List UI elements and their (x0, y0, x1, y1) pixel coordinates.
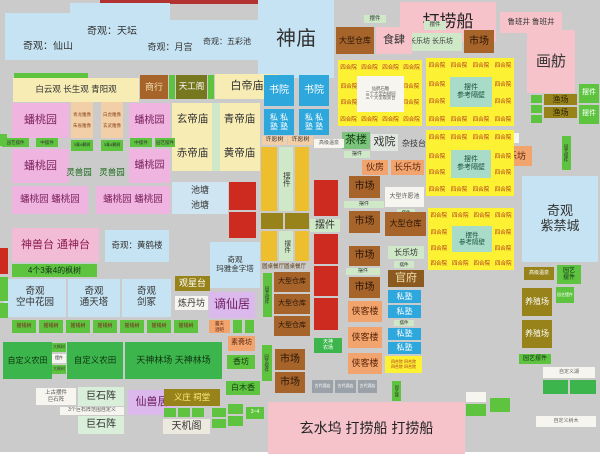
courtyard-cell-label: 四合院 (427, 185, 447, 193)
maple-note: 3乘4枫树 (71, 140, 93, 151)
huafang-boat: 画舫 (527, 30, 575, 93)
green-bit (543, 380, 568, 394)
red-decor-block (229, 212, 256, 238)
daxing-cangku: 大型仓库 (336, 27, 374, 54)
maple-strip: 4个3乘4的枫树 (12, 264, 97, 277)
courtyard-cell-label: 四合院 (449, 115, 469, 123)
sishu-school: 私 私 塾 塾 (264, 109, 294, 135)
courtyard-cell-label: 四合院 (427, 61, 447, 69)
zhong-baijian-label: 中摆件 (36, 138, 58, 147)
hotspring-label: 高级温泉 (314, 139, 344, 148)
green-strip (208, 75, 214, 99)
baijian-strip: 摆件 (344, 151, 370, 158)
wonder-forbidden-city: 奇观 紫禁城 (522, 176, 598, 262)
red-decor-block (229, 182, 256, 210)
courtyard-cell-label: 四合院 (427, 168, 447, 176)
xiakelou: 侠客楼 (348, 327, 382, 348)
green-bit (490, 398, 510, 412)
green-strip (169, 75, 175, 99)
yangzhichang: 养殖场 (522, 320, 552, 348)
money-tree: 摇钱树 (93, 320, 117, 333)
taoist-temples-row: 白云观 长生观 青阳观 (13, 78, 139, 102)
changlefang: 长乐坊 (391, 160, 424, 175)
red-decor-block (314, 180, 338, 216)
changlefang-strip: 长乐坊 (388, 246, 424, 259)
red-decor-block (314, 234, 338, 264)
courtyard-cell-label: 四合院 (451, 259, 471, 267)
courtyard-cell-label: 四合院 (493, 80, 513, 88)
shichang-market: 市场 (464, 30, 494, 53)
stonehenge: 巨石阵 (78, 387, 124, 406)
shichang-market: 市场 (275, 372, 305, 393)
sishu-school: 私 私 塾 塾 (299, 109, 329, 135)
green-bit (164, 408, 176, 417)
shuyuan-academy: 书院 (264, 75, 294, 106)
courtyard-cell-label: 四合院 (381, 63, 400, 71)
courtyard-cell-label: 四合院 (494, 259, 514, 267)
courtyard-cell-label: 四合院 (493, 168, 513, 176)
gold-strip (261, 147, 277, 211)
hotel-block: 古代酒店 (358, 380, 377, 393)
yy-vstrip: 园艺摆件 (263, 273, 272, 317)
chitang-pond: 池塘 池塘 (172, 182, 228, 214)
shichang-market: 市场 (349, 176, 380, 198)
tree-count-note: 3~4 (246, 407, 264, 419)
wonder-band (70, 3, 170, 17)
pantaoyuan-orchard: 蟠桃园 (129, 149, 170, 183)
wonder-huanghelou: 奇观：黄鹤楼 (105, 230, 169, 262)
grid-center-note: 摆件 参考隔壁 (450, 77, 492, 107)
courtyard-cell-label: 四合院 (471, 115, 491, 123)
money-tree: 摇钱树 (39, 320, 63, 333)
baijian-vstrip: 摆件 (279, 231, 293, 261)
suzhaifang: 素斋坊 (228, 336, 255, 351)
gold-strip (295, 147, 309, 211)
money-tree: 摇钱树 (147, 320, 171, 333)
green-strip (245, 320, 254, 333)
yuchang-fishery: 渔场 (544, 94, 577, 105)
courtyard-cell-label: 四合院 (471, 61, 491, 69)
courtyard-cell-label: 四合院 (494, 211, 514, 219)
yizhuang-citang: 义庄 祠堂 (164, 389, 220, 406)
ancient-note: 上古摆件 巨石阵 (36, 388, 76, 405)
lingshouyuan-label: 灵兽园 (97, 167, 127, 179)
green-bit (531, 115, 542, 123)
wonder-wucaichi-label: 奇观：五彩池 (196, 36, 258, 47)
baijian-block: 摆件 (579, 84, 599, 103)
sishu-school: 私塾 (388, 328, 421, 340)
courtyard-cell-label: 四合院 (429, 228, 449, 236)
yy-vstrip: 园艺摆 (392, 381, 401, 401)
zhong-baijian-label: 中摆件 (130, 138, 152, 147)
courtyard-cell-label: 四合院 (493, 244, 513, 252)
courtyard-cell-label: 四合院 (429, 211, 449, 219)
hotspring-block: 高级温泉 (524, 267, 554, 280)
wonder-xianshan-label: 奇观：仙山 (8, 41, 88, 53)
maple-note: 3乘4枫树 (101, 140, 123, 151)
wonder-maya: 奇观 玛雅金字塔 (210, 242, 260, 288)
money-tree: 摇钱树 (12, 320, 36, 333)
baijian-strip: 摆件 (344, 201, 384, 208)
courtyard-cell-label: 四合院 (493, 185, 513, 193)
courtyard-cell-label: 四合院 (449, 61, 469, 69)
gold-strip (295, 231, 309, 261)
yy-label: 园艺摆件 (519, 354, 551, 364)
game-layout-map: 奇观：天坛奇观：仙山奇观：月宫奇观：五彩池神庙打捞船鲁班井 鲁班井画舫摆件长乐坊… (0, 0, 600, 461)
daxing-cangku: 大型仓库 (274, 294, 310, 314)
stonehenge-note: 3个巨石阵范围自定义 (60, 407, 124, 415)
tianshen-farm: 天神 农场 (314, 338, 342, 353)
mini-courtyard-grid: 四合院 四合院 四合院 四合院 (385, 356, 422, 373)
yy-label: 园艺摆件 (556, 287, 574, 303)
baijian-block: 摆件 (579, 105, 599, 124)
courtyard-cell-label: 四合院 (427, 80, 447, 88)
yy-vstrip: 园艺摆件 (562, 136, 571, 170)
wonder-jianzhong: 奇观 剑冢 (122, 279, 171, 317)
shisi-eatery: 食肆 (376, 27, 412, 54)
tiangongge: 天工阁 (176, 75, 207, 99)
olive-decor-block (285, 213, 309, 229)
wonder-hanging-garden: 奇观 空中花园 (4, 279, 66, 317)
yy-block: 园艺 摆件 (557, 265, 581, 284)
courtyard-cell-label: 四合院 (493, 152, 513, 160)
courtyard-cell-label: 四合院 (360, 115, 379, 123)
green-bit (212, 408, 226, 417)
custom-farm: 自定义农田 (3, 342, 52, 379)
courtyard-cell-label: 四合院 (449, 133, 469, 141)
courtyard-cell-label: 四合院 (401, 98, 421, 106)
green-bit (466, 404, 486, 416)
white-bit (466, 392, 486, 402)
tianjige: 天机阁 (163, 419, 210, 434)
chalou-teahouse: 茶楼 (342, 132, 370, 149)
courtyard-cell-label: 四合院 (493, 61, 513, 69)
zajitai-label: 杂技台 (399, 138, 429, 150)
courtyard-cell-label: 四合院 (493, 97, 513, 105)
shenmiao-temple: 神庙 (258, 0, 334, 78)
green-strip (212, 103, 220, 171)
xiakelou: 侠客楼 (348, 301, 382, 322)
green-bit (531, 105, 542, 113)
gold-strip (261, 231, 277, 261)
yangzhichang: 养殖场 (522, 288, 552, 316)
wish-pool: 大型许愿池 (385, 187, 424, 207)
courtyard-cell-label: 四合院 (472, 211, 492, 219)
red-decor-block (314, 266, 338, 296)
sishu-school: 私塾 (388, 342, 421, 354)
baijian-strip: 摆件 (346, 268, 380, 275)
stonehenge: 巨石阵 (78, 416, 124, 434)
baijian-label: 摆件 (394, 320, 414, 326)
courtyard-cell-label: 四合院 (401, 82, 421, 90)
courtyard-cell-label: 四合院 (493, 228, 513, 236)
baijian-vstrip: 摆件 (279, 147, 293, 211)
round-table-label: 圆桌餐厅圆桌餐厅 (258, 263, 310, 271)
xiyuan-theater: 戏院 (371, 134, 398, 151)
baijian-label: 摆件 (364, 15, 386, 23)
money-tree: 摇钱树 (66, 320, 90, 333)
courtyard-cell-label: 四合院 (471, 185, 491, 193)
courtyard-cell-label: 四合院 (429, 259, 449, 267)
shichang-market: 市场 (349, 211, 380, 233)
grid-center-note: 摆件 参考隔壁 (452, 226, 492, 252)
xiakelou: 侠客楼 (348, 353, 382, 374)
baijian-label-large: 摆件 (310, 219, 340, 232)
courtyard-cell-label: 四合院 (449, 185, 469, 193)
courtyard-cell-label: 四合院 (339, 115, 358, 123)
yuchang-fishery: 渔场 (544, 107, 577, 118)
courtyard-cell-label: 四合院 (360, 63, 379, 71)
shuyuan-academy: 书院 (299, 75, 329, 106)
lutian-bar: 露天 酒吧 (209, 320, 230, 333)
qingdimiao-label: 青帝庙 (220, 113, 259, 126)
pantaoyuan-orchard: 蟠桃园 (129, 103, 170, 138)
maple-label: 大枫树 (52, 343, 66, 352)
lingshouyuan-label: 灵兽园 (64, 167, 94, 179)
green-bit (228, 416, 243, 426)
xuanshuiwu-dock: 玄水坞 打捞船 打捞船 (268, 402, 465, 454)
courtyard-cell-label: 四合院 (427, 115, 447, 123)
courtyard-cell-label: 四合院 (381, 115, 400, 123)
liandanfang: 炼丹坊 (175, 296, 208, 310)
pantaoyuan-pair: 蟠桃园 蟠桃园 (96, 186, 170, 214)
statue-column: 青龙雕像 朱雀雕像 (71, 102, 93, 138)
wonder-tongtianta: 奇观 通天塔 (68, 279, 120, 317)
huangdimiao-label: 黄帝庙 (220, 147, 259, 160)
courtyard-cell-label: 四合院 (451, 211, 471, 219)
custom-note: 自定义湖 (543, 367, 595, 378)
courtyard-cell-label: 四合院 (427, 133, 447, 141)
wish-tree-label: 许愿树 (288, 136, 313, 145)
courtyard-cell-label: 四合院 (471, 133, 491, 141)
green-bit (192, 408, 204, 417)
guanfu-office: 官府 (388, 270, 424, 287)
green-bit (570, 380, 596, 394)
sishu-school: 私塾 (388, 290, 421, 303)
pantaoyuan-orchard: 蟠桃园 (12, 149, 69, 183)
hotel-block: 古代酒店 (335, 380, 356, 393)
yy-baijian-label: 园艺摆件 (155, 138, 175, 147)
courtyard-cell-label: 四合院 (427, 97, 447, 105)
daxing-cangku: 大型仓库 (274, 272, 310, 292)
money-tree: 摇钱树 (174, 320, 198, 333)
green-strip (233, 320, 242, 333)
daxing-cangku: 大型仓库 (274, 316, 310, 336)
xiangfang: 香坊 (227, 355, 255, 369)
yy-vstrip: 园艺摆件 (262, 345, 272, 381)
edge-sliver (0, 303, 8, 318)
wish-tree-label: 许愿树 (262, 136, 287, 145)
shichang-market: 市场 (349, 246, 380, 266)
green-bit (212, 419, 226, 428)
hotel-block: 古代酒店 (312, 380, 333, 393)
tianshen-forest: 天神林场 天神林场 (125, 342, 222, 379)
edge-sliver (0, 134, 7, 146)
courtyard-cell-label: 四合院 (402, 115, 421, 123)
guanxingtai: 观星台 (175, 276, 210, 291)
baijian-label: 摆件 (394, 261, 414, 268)
courtyard-cell-label: 四合院 (493, 115, 513, 123)
green-bit (531, 95, 542, 103)
green-bit (228, 404, 243, 414)
daxing-cangku: 大型仓库 (385, 212, 426, 236)
statue-column: 白虎雕像 玄武雕像 (101, 102, 123, 138)
courtyard-cell-label: 四合院 (339, 98, 359, 106)
huofang-kitchen: 伙房 (362, 160, 388, 175)
courtyard-cell-label: 四合院 (339, 82, 359, 90)
green-bit (178, 408, 190, 417)
shenshoutai: 神兽台 通神台 (12, 228, 99, 262)
wonder-yuegong-label: 奇观：月宫 (138, 41, 202, 53)
money-tree: 摇钱树 (120, 320, 144, 333)
custom-farm: 自定义农田 (67, 342, 123, 379)
olive-decor-block (261, 213, 283, 229)
edge-sliver (0, 248, 8, 274)
shanghang-shop: 商行 (140, 75, 168, 99)
pantaoyuan-orchard: 蟠桃园 (12, 103, 69, 138)
sishu-school: 私塾 (388, 305, 421, 318)
wonder-tiantan-label: 奇观：天坛 (66, 26, 158, 38)
edge-sliver (0, 277, 8, 301)
courtyard-cell-label: 四合院 (402, 63, 421, 71)
chidimiao-label: 赤帝庙 (173, 147, 212, 160)
courtyard-cell-label: 四合院 (493, 133, 513, 141)
courtyard-cell-label: 四合院 (429, 244, 449, 252)
shichang-market: 市场 (349, 277, 380, 298)
custom-note: 自定义树木 (536, 416, 596, 427)
courtyard-cell-label: 四合院 (339, 63, 358, 71)
shichang-market: 市场 (275, 349, 305, 370)
zhexianju: 谪仙居 (209, 292, 255, 318)
baimuxiang: 白木香 (226, 381, 260, 395)
pantaoyuan-pair: 蟠桃园 蟠桃园 (12, 186, 88, 214)
xuandimiao-label: 玄帝庙 (173, 113, 212, 126)
courtyard-cell-label: 四合院 (427, 152, 447, 160)
grid-center-note: 仙鹤石雕 三个大型古树园 三个大型观景台 (357, 76, 404, 112)
courtyard-cell-label: 四合院 (472, 259, 492, 267)
baijian-label: 摆件 (424, 21, 446, 30)
maple-label: 大枫树 (52, 365, 66, 374)
grid-center-note: 摆件 参考隔壁 (451, 150, 491, 178)
baijian-label: 摆件 (52, 354, 66, 363)
red-decor-block (314, 298, 338, 330)
